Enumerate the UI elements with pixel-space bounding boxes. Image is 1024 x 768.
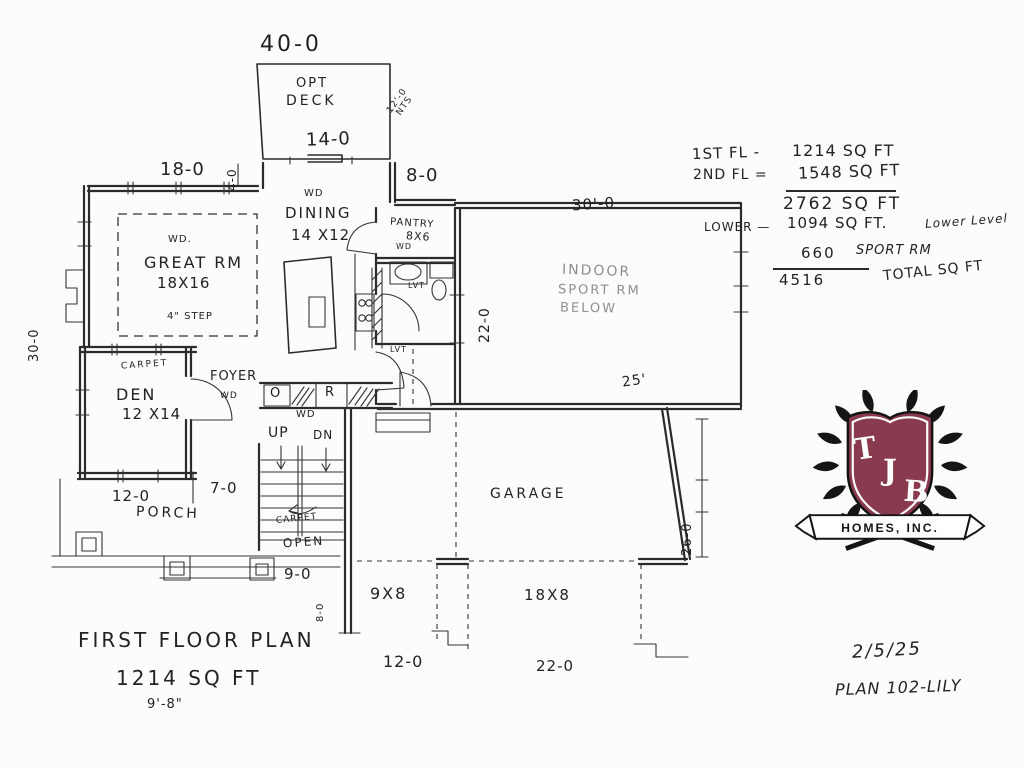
burner (359, 300, 365, 306)
area-row4-note: SPORT RM (856, 244, 932, 258)
dim-foyer: 7-0 (210, 481, 238, 497)
room-den-size: 12 X14 (122, 407, 181, 423)
note-stairs-up: UP (268, 426, 289, 441)
area-main-total: 2762 SQ FT (783, 196, 901, 214)
room-deck-line1: OPT (296, 77, 328, 91)
dim-garage-door-1: 9X8 (370, 586, 407, 603)
dim-kitchen-top: 8-0 (406, 167, 438, 186)
burner (366, 315, 372, 321)
plan-title: FIRST FLOOR PLAN (78, 630, 315, 651)
dim-4-0: 4-0 (226, 168, 239, 191)
burner (359, 315, 365, 321)
room-sport-line2: SPORT RM (558, 283, 641, 298)
logo-banner: HOMES, INC. (796, 515, 984, 539)
area-grand-total: 4516 (779, 273, 825, 289)
tjb-homes-logo: T J B HOMES, INC. (792, 390, 988, 562)
dim-garage-door-2: 18X8 (524, 588, 571, 604)
dim-8-0-small: 8-0 (316, 603, 327, 622)
note-wd-great: WD. (168, 235, 192, 246)
burner (366, 300, 372, 306)
note-oven: O (270, 387, 281, 401)
note-fridge: R (325, 386, 335, 400)
area-row1-label: 1ST FL - (692, 145, 761, 163)
floor-plan-page: 40-0 14-0 12'-0 NTS 18-0 4-0 8-0 30'-0 3… (0, 0, 1024, 768)
room-den: DEN (116, 387, 156, 404)
area-row3-value: 1094 SQ FT. (787, 216, 888, 232)
dim-deck-width: 40-0 (260, 33, 322, 56)
area-row2-value: 1548 SQ FT (798, 162, 901, 182)
room-deck-line2: DECK (286, 94, 337, 109)
kitchen-island (284, 257, 336, 353)
note-wd-dining: WD (304, 189, 324, 200)
room-garage: GARAGE (490, 487, 567, 502)
dim-greatroom-width: 18-0 (160, 161, 205, 180)
room-porch: PORCH (136, 505, 200, 522)
plan-sqft: 1214 SQ FT (116, 668, 261, 689)
note-lvt-hall: LVT (390, 346, 407, 354)
dim-garage-depth: 26-0 (681, 522, 695, 556)
plan-ceiling-height: 9'-8" (147, 698, 183, 712)
room-foyer: FOYER (210, 370, 257, 384)
note-wd-kitchen: WD (296, 410, 316, 421)
dim-deck-door: 14-0 (306, 130, 351, 150)
logo-letter-j: J (880, 452, 897, 487)
note-lvt-bath: LVT (408, 282, 425, 290)
dim-house-left: 30-0 (28, 328, 42, 362)
dim-9-0: 9-0 (284, 567, 312, 583)
note-wd-foyer: WD (220, 392, 238, 401)
room-sport-line1: INDOOR (562, 263, 632, 280)
dim-apron-2: 22-0 (536, 659, 574, 675)
dim-sport-depth: 22-0 (478, 307, 493, 343)
room-great: GREAT RM (144, 255, 243, 272)
room-great-size: 18X16 (157, 276, 210, 292)
room-dining-size: 14 X12 (291, 228, 350, 244)
note-wd-pantry: WD (396, 243, 412, 251)
note-step: 4" STEP (167, 312, 213, 323)
logo-banner-text: HOMES, INC. (841, 521, 939, 535)
area-row3-label: LOWER — (704, 221, 770, 234)
room-sport-line3: BELOW (560, 302, 617, 317)
dim-sport-width: 30'-0 (572, 196, 616, 215)
note-open: OPEN (283, 535, 325, 550)
room-dining: DINING (285, 206, 351, 222)
plan-date: 2/5/25 (852, 640, 923, 663)
area-row4-value: 660 (801, 246, 836, 262)
toilet (432, 280, 446, 300)
dim-sport-bottom: 25' (621, 372, 647, 390)
area-sum-line (786, 190, 896, 192)
area-row2-label: 2ND FL = (693, 168, 768, 183)
dim-porch-width: 12-0 (112, 489, 150, 505)
dim-apron-1: 12-0 (383, 654, 423, 671)
area-grand-line (773, 268, 869, 270)
note-stairs-dn: DN (313, 429, 333, 442)
logo-letter-b: B (903, 473, 930, 510)
area-row1-value: 1214 SQ FT (792, 143, 894, 160)
sink (395, 264, 421, 280)
